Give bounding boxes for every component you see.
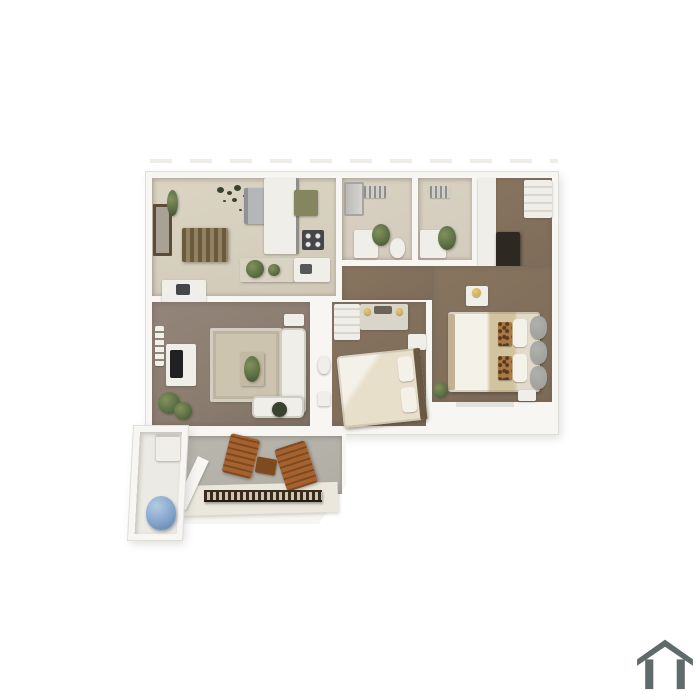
coffee-table-plant [244,356,260,382]
master-pillow-1 [513,319,527,347]
master-lamp [472,288,481,297]
dark-planter [272,402,287,417]
bedroom2-mirror [374,306,392,314]
wall-top-guide-marks [150,159,558,163]
master-corner-plant [433,382,448,398]
desk-chair [176,284,190,295]
patio-side-table [255,456,277,475]
wall-plant [167,190,178,216]
bedroom2-lamp-1 [364,308,371,315]
bathroom2-vent [430,186,450,198]
living-plant-2 [174,402,192,420]
bed2-pillow-2 [400,387,418,413]
leopard-pillow-1 [498,322,512,346]
house-outline-icon [636,636,694,690]
headboard-cushion-3 [530,366,547,389]
leopard-pillow-2 [498,356,512,380]
blue-cover-item [146,496,176,530]
closet-shelving-top-right [524,180,552,218]
nook-toilet [318,356,330,374]
house-logo [636,636,694,690]
water-heater-box [156,434,180,461]
kitchen-cabinets [264,178,299,254]
bedroom2-bed [336,348,427,428]
bathroom1-plant [372,224,390,246]
dining-table [182,228,228,262]
patio-railing [204,490,322,502]
tv [170,350,183,378]
exterior-shadow-band [456,402,514,407]
bathroom2-plant [438,226,456,250]
floorplan-screenshot [0,0,700,700]
master-footboard [448,314,455,390]
shower [344,182,364,216]
headboard-cushion-1 [530,316,547,339]
bedroom2-lamp-2 [396,308,403,315]
island-plant [246,260,264,278]
island-plant-small [268,264,280,276]
green-counter [294,190,318,216]
bathroom1-toilet [390,238,405,258]
bedroom2-closet [334,304,360,340]
wall-sign [155,326,164,366]
master-bench [518,390,536,401]
master-bed [448,310,548,394]
stove [302,230,324,250]
side-table [284,314,304,326]
sink [300,264,312,274]
leaf-wall-decor-icon [217,187,224,193]
bed2-pillow-1 [397,356,415,382]
nook-shelf [318,392,330,406]
headboard-cushion-2 [530,341,547,364]
bathroom1-vent [364,186,386,198]
master-pillow-2 [513,354,527,382]
